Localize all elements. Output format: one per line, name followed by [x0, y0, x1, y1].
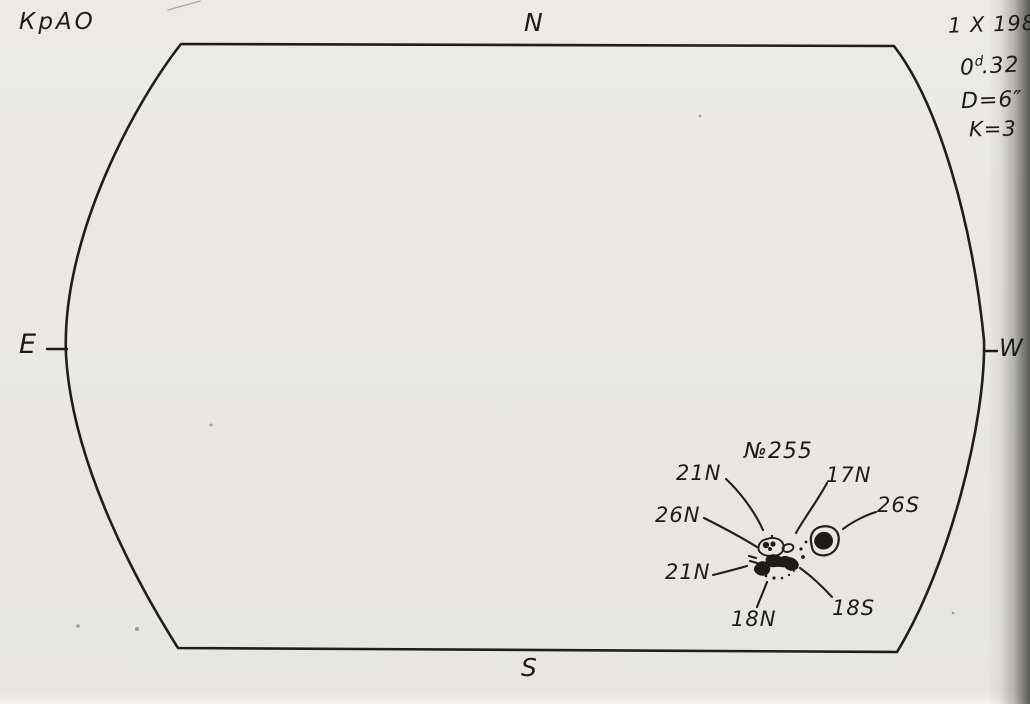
spot-core — [763, 542, 769, 548]
leader-line-18s — [800, 568, 832, 597]
umbra — [814, 532, 833, 550]
spot-label-18s: 18S — [832, 598, 875, 619]
leader-line-26n — [704, 518, 757, 547]
solar-drawing-page: КрАО N S E W 1 X 1983 0d.32 D=6″ K=3 №25… — [0, 0, 1030, 704]
umbra-bump — [817, 534, 823, 540]
east-label: E — [19, 331, 37, 358]
day-fraction-integer: 0 — [959, 55, 975, 81]
seeing-quality: K=3 — [969, 119, 1017, 141]
pore-dot — [788, 574, 790, 576]
dust-speck — [699, 115, 702, 118]
solar-disk-outline — [66, 44, 984, 652]
spot-dash — [750, 561, 757, 563]
west-label: W — [999, 336, 1024, 360]
spot-core — [768, 547, 772, 551]
solar-disk-drawing — [0, 0, 1030, 704]
spot-blob — [783, 557, 798, 571]
pore-dot — [805, 541, 808, 544]
spot-label-18n: 18N — [731, 609, 776, 630]
pore-dot — [799, 547, 802, 550]
pore-dot — [772, 576, 775, 579]
spot-dash — [749, 556, 756, 558]
spot-label-17n: 17N — [826, 465, 871, 486]
pore-dot — [793, 570, 795, 572]
dust-speck — [135, 627, 139, 631]
observatory-label: КрАО — [19, 11, 96, 34]
south-label: S — [521, 655, 538, 680]
spot-label-21n-upper: 21N — [676, 463, 721, 484]
day-fraction-decimal: .32 — [981, 53, 1020, 80]
pore-dot — [781, 577, 784, 580]
spot-label-26s: 26S — [877, 495, 920, 516]
leader-line-26s — [843, 512, 876, 529]
pore-dot — [765, 575, 768, 578]
sunspot-group — [749, 526, 839, 579]
group-number-label: №255 — [744, 441, 813, 463]
spot-core — [770, 541, 775, 546]
dust-speck — [210, 424, 213, 427]
dust-speck — [952, 612, 955, 615]
scratch-mark — [168, 1, 200, 10]
spot-ring — [758, 538, 783, 556]
spot-label-26n: 26N — [655, 505, 700, 526]
observation-day-fraction: 0d.32 — [959, 53, 1020, 79]
leader-line-18n — [757, 582, 767, 607]
observation-date: 1 X 1983 — [948, 12, 1030, 37]
pore-dot — [771, 535, 773, 537]
leader-line-21n-upper — [726, 479, 763, 530]
spot-label-21n-lower: 21N — [665, 562, 710, 583]
north-label: N — [524, 10, 544, 35]
dust-speck — [76, 624, 80, 628]
telescope-diameter: D=6″ — [961, 89, 1023, 113]
dust-specks — [76, 115, 954, 631]
umbra-bump — [824, 540, 830, 546]
leader-line-21n-lower — [713, 566, 747, 575]
pore-dot — [801, 555, 805, 559]
